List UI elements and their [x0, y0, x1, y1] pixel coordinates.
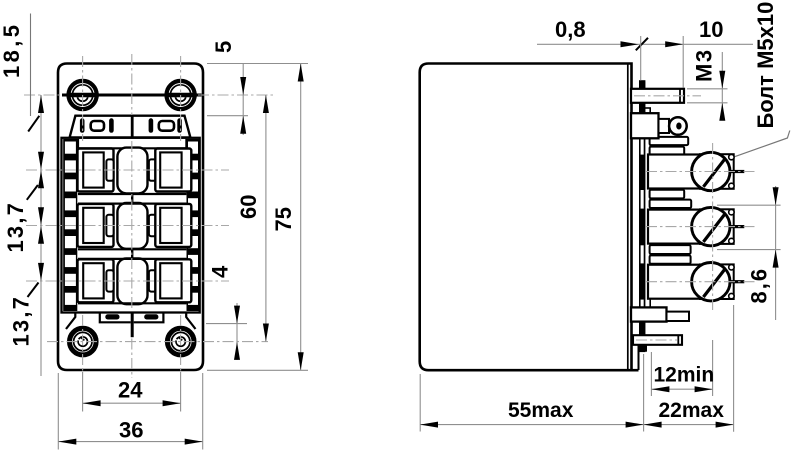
- svg-text:36: 36: [119, 418, 143, 443]
- svg-text:8,6: 8,6: [747, 267, 772, 304]
- svg-text:22max: 22max: [659, 399, 725, 422]
- svg-text:18,5: 18,5: [0, 22, 24, 78]
- svg-text:10: 10: [699, 17, 723, 42]
- svg-text:60: 60: [236, 195, 261, 219]
- svg-text:75: 75: [271, 207, 296, 231]
- svg-text:24: 24: [118, 378, 143, 403]
- svg-text:55max: 55max: [508, 399, 574, 422]
- svg-text:5: 5: [211, 41, 236, 53]
- svg-text:0,8: 0,8: [555, 17, 586, 42]
- svg-text:4: 4: [208, 265, 233, 278]
- svg-text:13,7: 13,7: [9, 295, 34, 347]
- svg-text:Болт М5х10: Болт М5х10: [753, 2, 778, 129]
- svg-text:М3: М3: [692, 48, 717, 82]
- svg-text:12min: 12min: [654, 364, 715, 387]
- svg-text:13,7: 13,7: [3, 201, 28, 253]
